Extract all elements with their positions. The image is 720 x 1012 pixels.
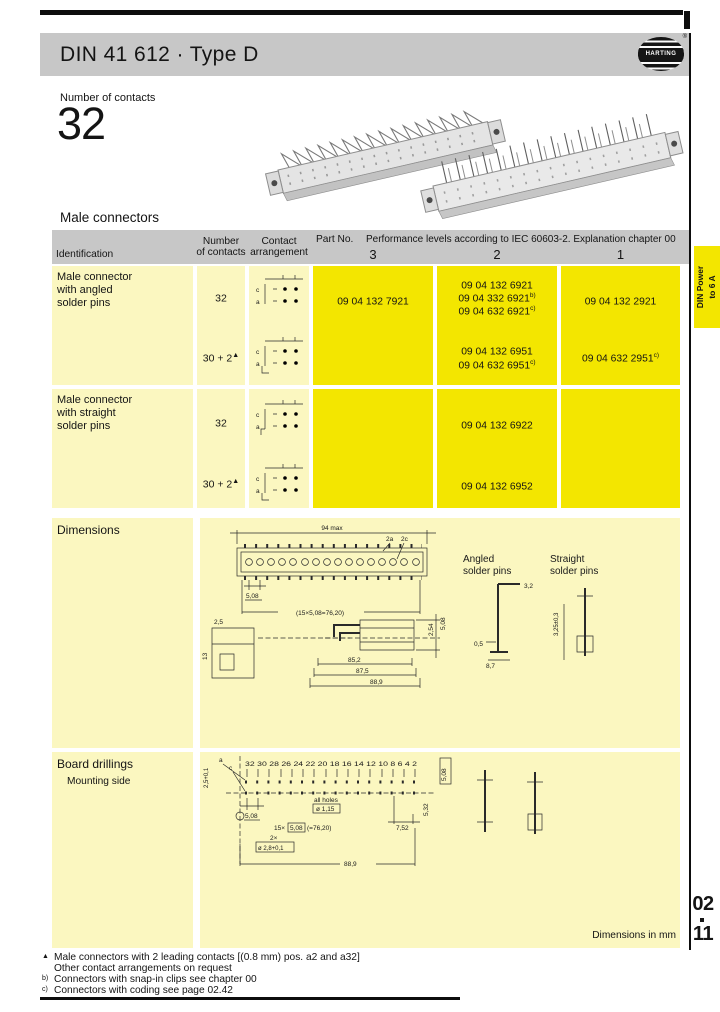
svg-text:3,2: 3,2 xyxy=(524,583,533,590)
footnote: Other contact arrangements on request xyxy=(42,963,232,974)
part-number: 09 04 132 6951 xyxy=(437,345,557,357)
contact-arrangement-icon: c a xyxy=(253,272,305,318)
svg-text:5,32: 5,32 xyxy=(423,803,430,816)
partno-level2-cell: 09 04 132 6921 09 04 332 6921b) 09 04 63… xyxy=(437,266,557,385)
identification-line: solder pins xyxy=(57,297,110,309)
svg-text:13: 13 xyxy=(202,652,209,660)
dimensions-label-cell: Dimensions xyxy=(52,518,193,748)
chapter-tab-text: DIN Power to 6 A xyxy=(694,246,720,328)
straight-pins-label: Straight xyxy=(550,554,585,565)
harting-logo-text: HARTING xyxy=(638,49,684,59)
contact-arrangement-icon: c a xyxy=(253,334,305,380)
chapter-number: 02 xyxy=(686,893,720,916)
part-number: 09 04 132 6952 xyxy=(437,480,557,492)
table-header: Identification Number of contacts Contac… xyxy=(52,230,690,264)
svg-text:a: a xyxy=(256,488,260,495)
part-number: 09 04 132 7921 xyxy=(313,295,433,307)
contacts-value: 32 xyxy=(57,98,105,150)
svg-text:c: c xyxy=(256,349,260,356)
part-number: 09 04 632 2951c) xyxy=(561,352,680,364)
page-number-separator xyxy=(700,918,704,922)
part-number: 09 04 332 6921b) xyxy=(437,292,557,304)
dimensions-drawing: 94 max 2a 2c 5,08 (15×5,08=76,20) 2,5 13… xyxy=(200,518,680,748)
svg-text:a: a xyxy=(256,361,260,368)
footnote: ▲Male connectors with 2 leading contacts… xyxy=(42,952,360,963)
contacts-cell: 32 30 + 2▲ xyxy=(197,266,245,385)
identification-line: Male connector xyxy=(57,394,132,406)
harting-logo: HARTING xyxy=(638,37,684,71)
svg-text:ø 1,15: ø 1,15 xyxy=(316,806,335,813)
svg-text:88,9: 88,9 xyxy=(344,861,357,868)
board-drawing-cell: 32 30 28 26 24 22 20 18 16 14 12 10 8 6 … xyxy=(200,752,680,948)
contacts-count: 30 + 2▲ xyxy=(197,352,245,365)
partno-level1-cell xyxy=(561,389,680,508)
angled-pins-label: Angled xyxy=(463,554,494,565)
svg-text:2,5: 2,5 xyxy=(214,619,223,626)
contacts-count: 32 xyxy=(197,292,245,305)
board-subtitle: Mounting side xyxy=(67,776,130,787)
svg-text:c: c xyxy=(256,412,260,419)
triangle-marker-icon: ▲ xyxy=(42,953,54,960)
svg-text:c: c xyxy=(256,287,260,294)
svg-text:(=76,20): (=76,20) xyxy=(307,825,331,832)
dimensions-title: Dimensions xyxy=(57,523,120,537)
page-number: 11 xyxy=(686,923,720,946)
identification-line: Male connector xyxy=(57,271,132,283)
board-label-cell: Board drillings Mounting side xyxy=(52,752,193,948)
registered-trademark-icon: ® xyxy=(683,34,687,40)
level-3: 3 xyxy=(313,247,433,262)
svg-text:94 max: 94 max xyxy=(321,525,343,532)
identification-line: solder pins xyxy=(57,420,110,432)
svg-text:2×: 2× xyxy=(270,835,278,842)
part-number: 09 04 132 2921 xyxy=(561,295,680,307)
arrangement-cell: c a c a xyxy=(249,266,309,385)
identification-line: with angled xyxy=(57,284,113,296)
footnote: c)Connectors with coding see page 02.42 xyxy=(42,985,233,996)
part-number: 09 04 132 6922 xyxy=(437,419,557,431)
part-number: 09 04 132 6921 xyxy=(437,279,557,291)
svg-text:15×: 15× xyxy=(274,825,285,832)
partno-level1-cell: 09 04 132 2921 09 04 632 2951c) xyxy=(561,266,680,385)
col-identification: Identification xyxy=(56,249,113,260)
identification-cell: Male connector with angled solder pins xyxy=(52,266,193,385)
svg-text:5,08: 5,08 xyxy=(246,593,259,600)
part-number: 09 04 632 6921c) xyxy=(437,305,557,317)
board-drilling-drawing: 32 30 28 26 24 22 20 18 16 14 12 10 8 6 … xyxy=(200,752,680,924)
registration-mark xyxy=(684,11,690,29)
footnote: b)Connectors with snap-in clips see chap… xyxy=(42,974,257,985)
svg-text:5,08: 5,08 xyxy=(290,825,303,832)
svg-text:a: a xyxy=(256,424,260,431)
svg-text:solder pins: solder pins xyxy=(463,566,511,577)
connector-front-view xyxy=(244,546,422,578)
col-number-line2: of contacts xyxy=(191,247,251,258)
svg-text:2a: 2a xyxy=(386,536,394,543)
arrangement-cell: c a c a xyxy=(249,389,309,508)
contacts-cell: 32 30 + 2▲ xyxy=(197,389,245,508)
svg-text:87,5: 87,5 xyxy=(356,668,369,675)
level-2: 2 xyxy=(437,247,557,262)
part-number: 09 04 632 6951c) xyxy=(437,359,557,371)
svg-text:88,9: 88,9 xyxy=(370,679,383,686)
col-part-no: Part No. xyxy=(316,234,353,245)
dimensions-drawing-cell: 94 max 2a 2c 5,08 (15×5,08=76,20) 2,5 13… xyxy=(200,518,680,748)
svg-text:(15×5,08=76,20): (15×5,08=76,20) xyxy=(296,610,344,617)
svg-text:3,25±0,3: 3,25±0,3 xyxy=(554,612,560,636)
svg-text:2c: 2c xyxy=(401,536,409,543)
bottom-rule xyxy=(40,997,460,1000)
footnote-c-marker: c) xyxy=(42,986,54,993)
svg-text:a: a xyxy=(256,299,260,306)
contacts-count: 32 xyxy=(197,417,245,430)
connector-straight-photo xyxy=(415,108,685,220)
footnote-b-marker: b) xyxy=(42,975,54,982)
pin-numbers: 32 30 28 26 24 22 20 18 16 14 12 10 8 6 … xyxy=(245,761,418,768)
svg-text:85,2: 85,2 xyxy=(348,657,361,664)
page-edge-line xyxy=(689,33,691,950)
level-1: 1 xyxy=(561,247,680,262)
partno-level2-cell: 09 04 132 6922 09 04 132 6952 xyxy=(437,389,557,508)
svg-text:5,08: 5,08 xyxy=(245,813,258,820)
contacts-count: 30 + 2▲ xyxy=(197,478,245,491)
catalog-page: DIN 41 612 · Type D HARTING ® Number of … xyxy=(0,0,720,1012)
svg-text:2,5+0,1: 2,5+0,1 xyxy=(204,767,210,788)
product-photo xyxy=(248,74,700,220)
col-contact-line1: Contact xyxy=(249,236,309,247)
contact-arrangement-icon: c a xyxy=(253,461,305,507)
partno-level3-cell: 09 04 132 7921 xyxy=(313,266,433,385)
svg-text:c: c xyxy=(256,476,260,483)
partno-level3-cell xyxy=(313,389,433,508)
board-title: Board drillings xyxy=(57,757,133,771)
identification-line: with straight xyxy=(57,407,116,419)
col-performance: Performance levels according to IEC 6060… xyxy=(366,234,676,245)
section-male-connectors: Male connectors xyxy=(60,210,159,225)
dimensions-in-mm: Dimensions in mm xyxy=(480,930,676,941)
svg-text:all holes: all holes xyxy=(314,797,339,804)
contact-arrangement-icon: c a xyxy=(253,397,305,443)
svg-text:a: a xyxy=(219,757,223,764)
page-title: DIN 41 612 · Type D xyxy=(60,43,259,67)
svg-text:2,54: 2,54 xyxy=(428,623,435,636)
col-contact-line2: arrangement xyxy=(249,247,309,258)
svg-text:8,7: 8,7 xyxy=(486,663,495,670)
header-band: DIN 41 612 · Type D HARTING ® xyxy=(40,33,690,76)
svg-text:5,08: 5,08 xyxy=(441,768,448,781)
col-number-line1: Number xyxy=(191,236,251,247)
identification-cell: Male connector with straight solder pins xyxy=(52,389,193,508)
top-rule xyxy=(40,10,683,15)
svg-text:5,08: 5,08 xyxy=(440,617,447,630)
svg-text:7,52: 7,52 xyxy=(396,825,409,832)
svg-text:ø 2,8+0,1: ø 2,8+0,1 xyxy=(258,846,284,852)
svg-text:solder pins: solder pins xyxy=(550,566,598,577)
svg-text:0,5: 0,5 xyxy=(474,641,483,648)
